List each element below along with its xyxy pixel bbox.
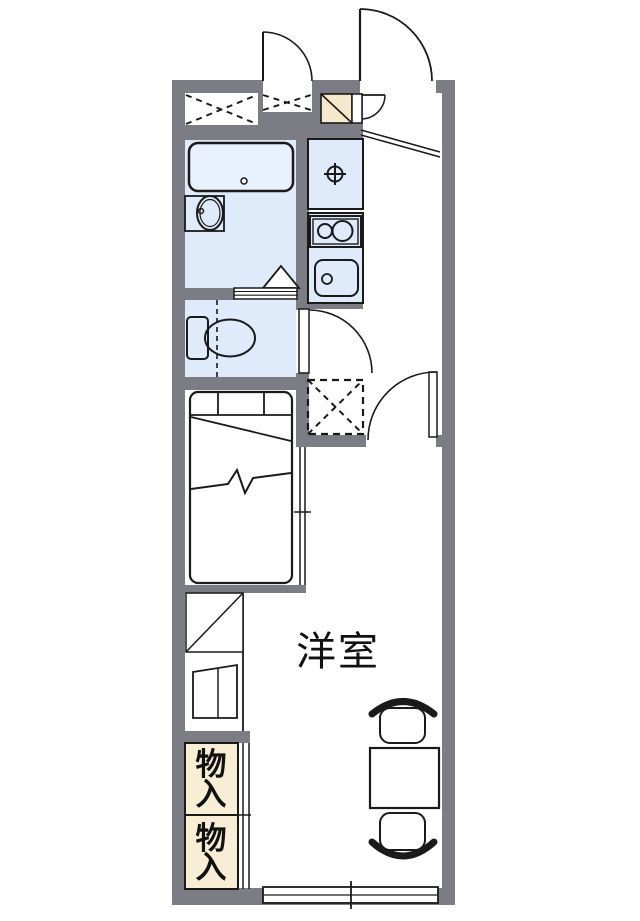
chair-seat-bottom — [380, 813, 425, 850]
wall-segment — [172, 731, 250, 743]
storage-bottom-label: 物入 — [196, 821, 227, 886]
main-room-door-leaf — [429, 372, 437, 437]
bathtub — [189, 143, 293, 191]
door-opening-main-room — [366, 437, 436, 447]
bath-sliding-door — [234, 288, 297, 299]
wall-segment — [185, 125, 363, 140]
shoe-cabinet-door-leaf — [352, 94, 362, 123]
wall-right — [442, 80, 455, 905]
floor-plan: 洋室 物入 物入 — [0, 0, 640, 921]
wall-segment — [185, 377, 309, 390]
wall-segment — [296, 435, 366, 447]
storage-top-label: 物入 — [196, 747, 227, 813]
wall-left — [172, 80, 185, 905]
table — [370, 748, 439, 808]
toilet-door-leaf — [299, 309, 309, 373]
chair-seat-top — [380, 708, 425, 743]
wall-segment — [185, 585, 306, 593]
main-room-label: 洋室 — [296, 629, 380, 675]
kitchen-counter — [308, 213, 363, 303]
wall-segment — [185, 288, 234, 300]
door-opening-entrance — [360, 80, 436, 93]
mini-fridge — [193, 665, 237, 718]
toilet-room-floor — [185, 300, 296, 377]
bathtub-drain — [241, 178, 247, 184]
door-opening — [263, 80, 312, 93]
